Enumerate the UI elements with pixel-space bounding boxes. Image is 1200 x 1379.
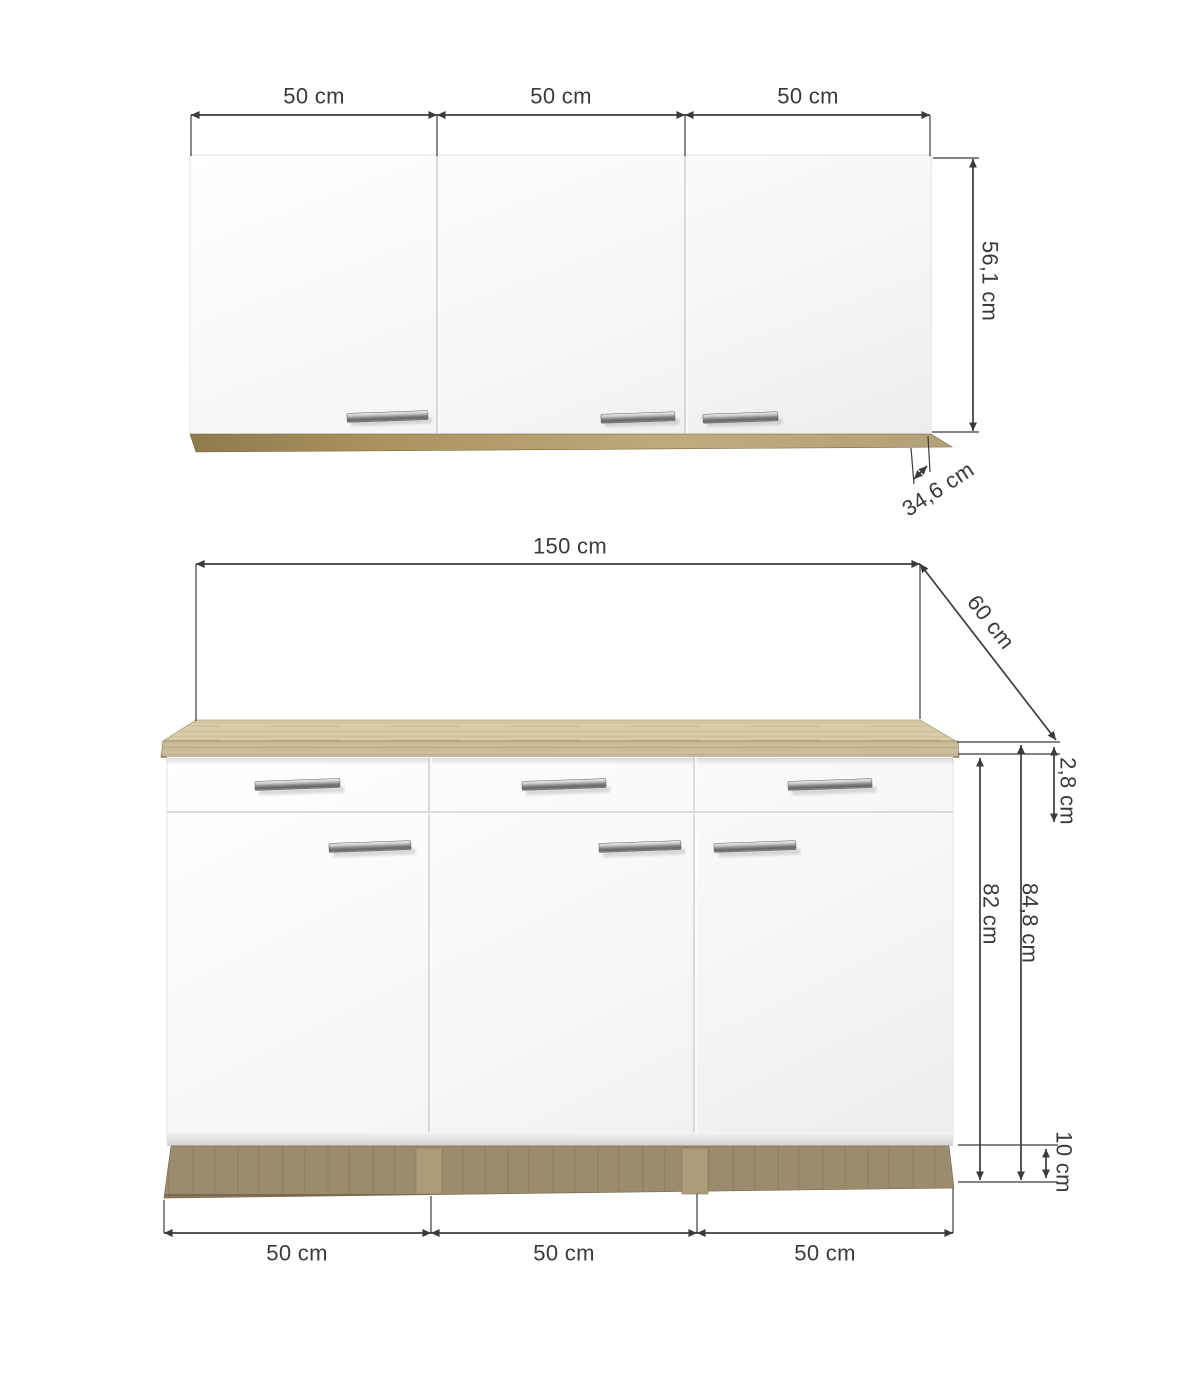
- wall-door3-width-label: 50 cm: [777, 84, 838, 109]
- base-depth-label: 60 cm: [962, 590, 1020, 654]
- wall-handle-2: [601, 412, 679, 428]
- wall-cabinet: [190, 155, 952, 452]
- plinth-height-label: 10 cm: [1052, 1131, 1077, 1192]
- plinth: [164, 1146, 954, 1198]
- dimension-line-base-depth: [920, 564, 1056, 740]
- worktop-thickness-label: 2,8 cm: [1056, 757, 1081, 825]
- wall-cabinet-bottom-trim: [190, 434, 952, 452]
- wall-height-label: 56,1 cm: [978, 241, 1003, 321]
- wall-cabinet-front: [190, 155, 931, 434]
- door-bottom-shadow: [167, 1132, 953, 1146]
- base-body-height-label: 82 cm: [979, 883, 1004, 944]
- plinth-foot-2: [682, 1148, 708, 1194]
- worktop-top-surface: [163, 720, 956, 741]
- wall-depth-label: 34,6 cm: [897, 457, 978, 522]
- kitchen-dimension-diagram: 50 cm 50 cm 50 cm 56,1 cm 34,6 cm: [0, 0, 1200, 1379]
- wall-door2-width-label: 50 cm: [530, 84, 591, 109]
- base-door-handle-1: [329, 840, 415, 857]
- base-door2-width-label: 50 cm: [533, 1241, 594, 1266]
- dimension-line-wall-depth: [914, 466, 927, 479]
- base-door1-width-label: 50 cm: [266, 1241, 327, 1266]
- wall-handle-3: [703, 412, 782, 428]
- base-door-handle-3: [714, 840, 800, 857]
- base-total-width-label: 150 cm: [533, 534, 607, 559]
- worktop-front-edge: [161, 741, 959, 757]
- diagram-canvas: 50 cm 50 cm 50 cm 56,1 cm 34,6 cm: [0, 0, 1200, 1379]
- extension-line: [911, 448, 914, 484]
- under-worktop-shadow: [167, 758, 953, 765]
- plinth-foot-1: [416, 1148, 442, 1194]
- base-cabinet: [161, 720, 959, 1198]
- base-door-handle-2: [599, 840, 685, 857]
- wall-door1-width-label: 50 cm: [283, 84, 344, 109]
- base-door3-width-label: 50 cm: [794, 1241, 855, 1266]
- base-total-height-label: 84,8 cm: [1018, 883, 1043, 963]
